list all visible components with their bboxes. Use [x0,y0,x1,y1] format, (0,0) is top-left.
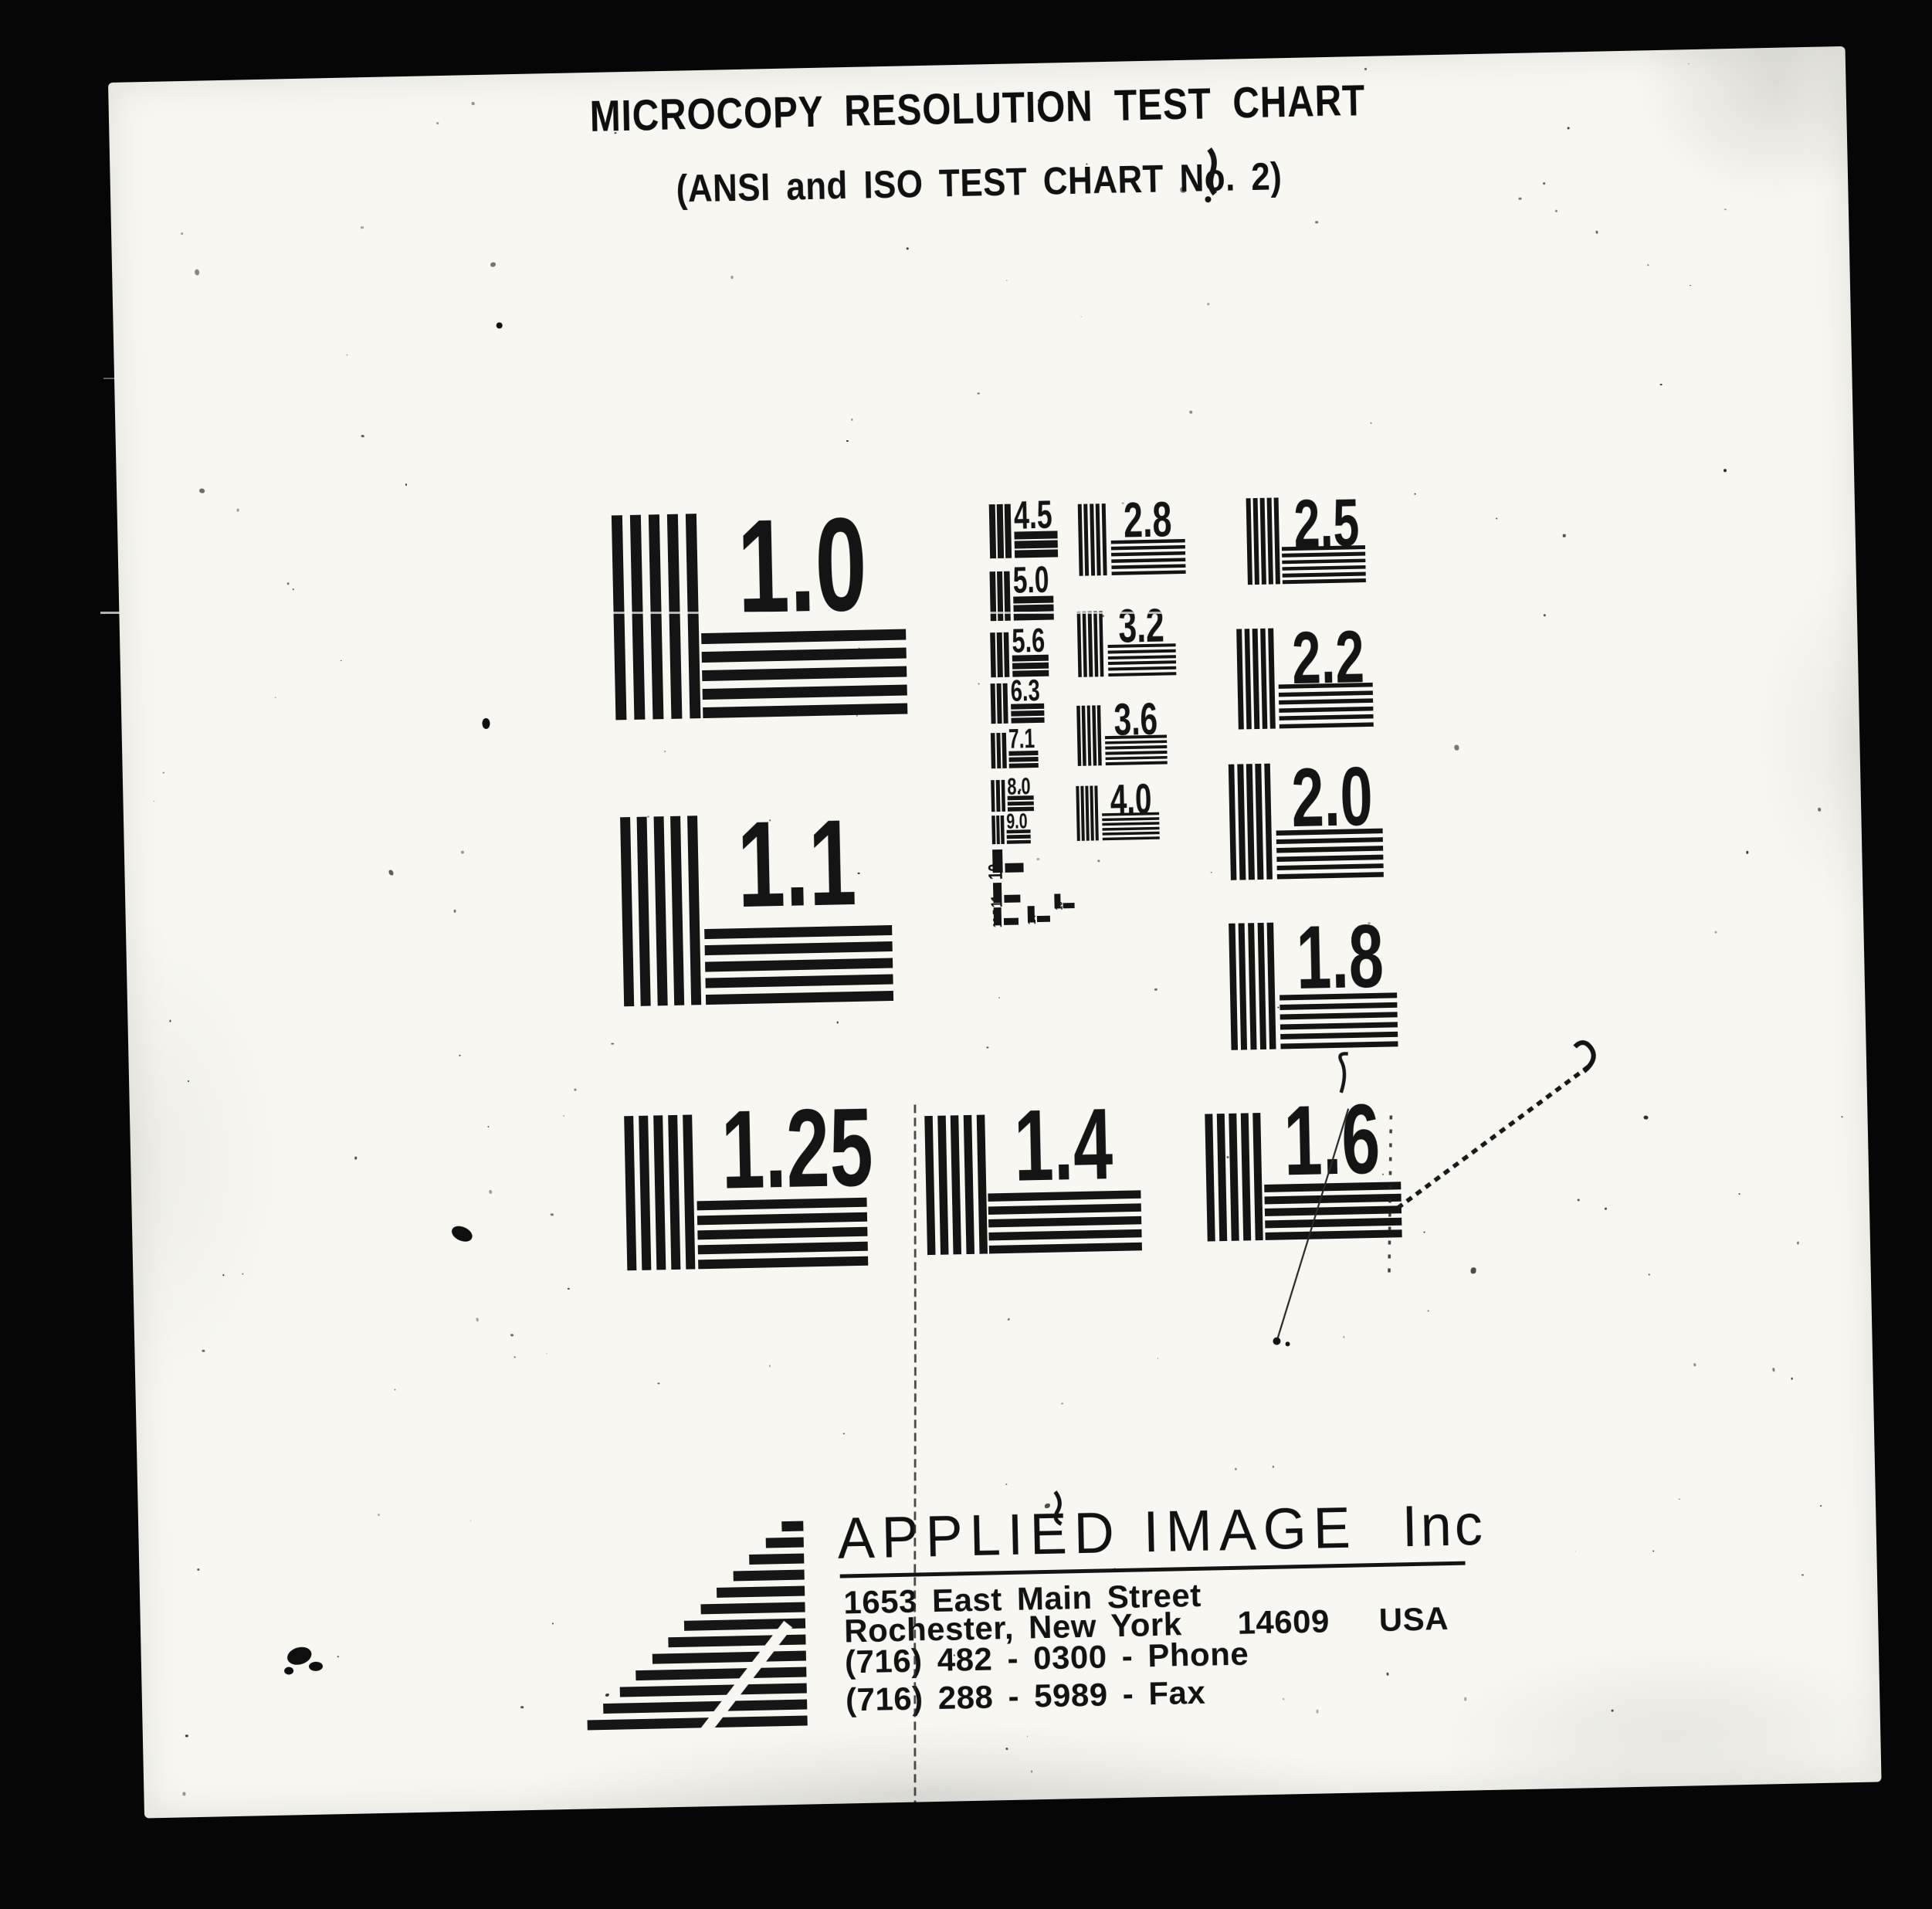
dust-speck [1649,1274,1650,1276]
dust-speck [1189,410,1192,413]
dust-speck [1081,316,1083,317]
dust-speck [169,1020,171,1022]
dust-speck [242,1273,243,1276]
dust-speck [1496,518,1497,520]
dust-speck [1386,1673,1389,1676]
resolution-pattern-5.0: 5.0 [990,571,1054,622]
dust-speck [1454,745,1459,751]
resolution-value-label: 2.5 [1293,490,1353,558]
vertical-bars-block [1205,1113,1263,1241]
resolution-pattern-2.2: 2.2 [1236,626,1374,730]
resolution-pattern-1.4: 1.4 [924,1111,1142,1255]
dust-speck [1061,1402,1063,1404]
vertical-bars-block [624,1114,695,1270]
brand-suffix: Inc [1402,1493,1486,1559]
dust-speck [461,851,464,854]
dust-speck [1568,127,1570,129]
brand-line: APPLIED IMAGEInc [837,1491,1534,1572]
dust-speck [1647,264,1649,266]
dust-speck [514,1356,516,1358]
dust-speck [1368,922,1371,925]
dust-speck [293,588,294,590]
dust-speck [978,683,980,685]
logo-stripe [588,1716,808,1731]
resolution-value-label: 2.0 [1290,754,1367,839]
vertical-bars-block [989,504,1012,559]
dust-speck [1519,198,1522,200]
dust-speck [488,1126,490,1127]
ink-blob [449,1223,475,1245]
brand-text: APPLIED IMAGE [837,1496,1358,1572]
dust-speck [552,1622,554,1624]
resolution-pattern-3.2: 3.2 [1077,609,1177,677]
resolution-pattern-1.6: 1.6 [1205,1110,1402,1241]
dust-speck [489,1190,492,1194]
logo-stripe [603,1700,807,1714]
dust-speck [1611,1709,1613,1711]
vertical-bars-block [620,815,701,1006]
dust-speck [1724,469,1727,473]
resolution-value-label: 1.4 [1008,1093,1117,1196]
vertical-bars-block [1246,497,1280,585]
vertical-bars-block [1077,611,1104,677]
vertical-bars-block [1236,629,1276,730]
dust-speck [1086,163,1087,164]
dust-speck [1428,1310,1429,1312]
dust-speck [658,1383,660,1385]
dust-speck [993,840,995,842]
dust-speck [1157,1358,1158,1359]
dust-speck [1139,1633,1141,1636]
dust-speck [354,1157,358,1160]
vertical-bars-block [1076,705,1102,766]
resolution-value-label: 5.0 [1012,562,1041,600]
resolution-pattern-3.6: 3.6 [1076,704,1168,765]
vertical-bars-block [924,1115,988,1256]
dust-speck [454,910,456,913]
logo-stripe [620,1684,807,1697]
resolution-pattern-5.6: 5.6 [990,632,1049,678]
resolution-pattern-16: 16 [1054,893,1074,909]
dust-speck [340,660,341,661]
dust-speck [470,1520,472,1521]
dust-speck [287,582,290,585]
dust-speck [346,354,347,355]
dust-speck [405,483,407,486]
dust-speck [1652,1551,1654,1552]
dust-speck [1688,63,1690,65]
dust-speck [1464,1697,1467,1701]
dust-speck [1007,1318,1009,1321]
dust-speck [388,870,393,875]
horizontal-bars-block [1063,903,1075,908]
dust-speck [1577,1199,1580,1202]
resolution-value-label: 1.8 [1296,910,1380,1002]
resolution-value-label: 3.6 [1113,697,1158,743]
vertical-bars-block [1076,785,1098,841]
dust-speck [1283,1697,1284,1700]
dust-speck [1364,68,1366,70]
dust-speck [1605,1207,1607,1209]
dust-speck [575,1088,577,1090]
resolution-value-label: 9.0 [1006,810,1023,832]
dust-speck [730,276,733,280]
dust-speck [1841,1116,1842,1117]
resolution-value-label: 10 [986,863,1005,880]
dust-speck [1382,1174,1384,1175]
dust-speck [605,1694,609,1697]
dust-speck [1470,1267,1476,1273]
resolution-value-label: 2.8 [1121,494,1174,544]
dust-speck [1019,788,1021,791]
ink-blob-cluster [285,1644,314,1667]
dust-speck [1235,1468,1237,1470]
logo-stripe [652,1651,806,1664]
resolution-pattern-2.8: 2.8 [1078,502,1186,576]
dust-speck [1643,1115,1648,1119]
dust-speck [1802,1574,1804,1576]
dust-speck [185,1734,188,1737]
dust-speck [521,1706,524,1708]
dust-speck [472,102,474,105]
resolution-pattern-7.1: 7.1 [991,732,1039,768]
dust-speck [1005,1748,1008,1750]
dust-speck [978,393,979,395]
dust-speck [1679,1498,1681,1500]
resolution-value-label: 8.0 [1007,774,1025,798]
dust-speck [611,1043,614,1045]
dust-speck [1690,285,1691,286]
resolution-pattern-2.5: 2.5 [1246,496,1366,585]
resolution-pattern-10: 10 [992,849,1024,873]
horizontal-bars-block [1037,916,1050,922]
resolution-value-label: 1.6 [1283,1090,1381,1192]
dust-speck [1097,860,1100,863]
dust-speck [337,1656,338,1658]
vertical-bars-block [991,733,1007,768]
dust-speck [851,419,852,421]
resolution-pattern-1.0: 1.0 [612,510,907,721]
dust-speck [195,269,199,275]
dust-speck [1818,808,1821,812]
vertical-bars-block [990,571,1011,622]
dust-speck [546,1353,547,1355]
dust-speck [954,1655,955,1656]
dust-speck [987,1046,989,1049]
resolution-pattern-14: 14 [1028,906,1050,923]
dust-speck [1595,231,1598,234]
dust-speck [459,1055,461,1056]
resolution-value-label: 6.3 [1010,676,1034,707]
dust-speck [1208,303,1210,305]
dust-speck [1554,209,1557,212]
vertical-bars-block [1078,504,1107,576]
dust-speck [1038,100,1040,102]
dust-speck [361,435,364,437]
dust-speck [1006,1483,1008,1485]
logo-stripe [781,1521,803,1532]
resolution-value-label: 11 [989,895,1005,907]
resolution-pattern-1.1: 1.1 [620,812,893,1006]
resolution-pattern-9.0: 9.0 [991,815,1031,844]
dust-speck [614,132,616,134]
dust-speck [647,816,649,818]
dust-speck [1544,614,1546,616]
dotted-scratch-line [1395,1066,1591,1208]
resolution-value-label: 5.6 [1012,624,1038,659]
scanned-frame: { "document": { "title": "MICROCOPY RESO… [0,0,1932,1909]
dust-speck [1797,1242,1800,1245]
logo-stripe [749,1554,804,1565]
scratch-hook [1574,1043,1594,1072]
dust-speck [1121,502,1124,504]
horizontal-bars-block [701,629,907,719]
dust-speck [858,647,859,649]
dust-speck [153,801,154,802]
dust-speck [568,1288,570,1290]
resolution-pattern-12.5: 12.5 [994,907,1019,926]
dust-speck [837,1022,839,1024]
dust-speck [274,697,276,697]
resolution-value-label: 1.0 [729,497,875,633]
dust-speck [490,262,496,266]
address-country: USA [1378,1600,1449,1638]
dust-speck [1227,1156,1229,1158]
dust-speck [202,1349,205,1352]
resolution-pattern-11: 11 [993,882,1021,903]
resolution-value-label: 1.1 [730,802,863,927]
dust-speck [1714,931,1717,933]
dust-speck [1693,1363,1696,1367]
dust-speck [476,1317,479,1321]
applied-image-logo [583,1521,808,1734]
resolution-value-label: 4.0 [1110,778,1151,821]
dust-speck [1739,1193,1740,1195]
dust-speck [846,440,849,442]
resolution-pattern-1.25: 1.25 [624,1111,868,1270]
logo-stripe [717,1586,805,1598]
dust-speck [1772,1368,1775,1372]
dust-speck [769,819,771,821]
resolution-pattern-8.0: 8.0 [991,779,1034,812]
dust-speck [551,1213,553,1216]
resolution-pattern-6.3: 6.3 [991,683,1045,724]
dust-speck [1343,1336,1344,1338]
dust-speck [907,248,909,250]
horizontal-bars-block [1005,863,1023,873]
dust-speck [236,509,239,512]
resolution-pattern-4.5: 4.5 [989,503,1058,558]
resolution-value-label: 3.2 [1117,602,1166,650]
dust-speck [563,1115,564,1117]
dust-speck [1273,1466,1274,1467]
dust-speck [769,1365,771,1368]
dust-speck [199,488,205,493]
logo-stripe [766,1538,804,1548]
horizontal-bars-block [1004,918,1019,925]
horizontal-bars-block [1004,894,1020,902]
resolution-value-label: 2.2 [1291,620,1358,696]
resolution-value-label: 4.5 [1013,495,1044,535]
dust-speck [744,1724,747,1725]
vertical-bars-block [1229,923,1276,1050]
page-title: MICROCOPY RESOLUTION TEST CHART [247,68,1707,150]
dust-speck [361,226,364,229]
dust-speck [1031,1771,1032,1772]
hairline-end-blob [1273,1338,1280,1345]
dust-speck [1277,1007,1279,1009]
dust-speck [1316,221,1318,223]
dust-speck [197,1568,199,1571]
logo-stripe [636,1667,806,1681]
dust-speck [1414,493,1415,494]
address-zip: 14609 [1237,1602,1330,1640]
dust-speck [183,1792,186,1796]
horizontal-bars-block [704,925,893,1005]
vertical-bars-block [1229,764,1273,880]
dust-speck [222,1275,224,1276]
dust-speck [1820,1505,1822,1507]
resolution-pattern-2.0: 2.0 [1229,761,1384,880]
dust-speck [1211,872,1212,873]
logo-stripe [734,1570,805,1582]
dust-speck [163,772,164,774]
logo-stripe [700,1602,805,1615]
dust-speck [181,232,182,234]
page-subtitle: (ANSI and ISO TEST CHART No. 2) [215,144,1744,221]
dust-speck [1423,1232,1425,1233]
dust-speck [1563,534,1565,537]
resolution-pattern-1.8: 1.8 [1229,920,1398,1049]
dust-speck [378,1514,380,1516]
dust-speck [188,1080,189,1082]
resolution-value-label: 7.1 [1008,726,1029,754]
resolution-value-label: 14 [1026,915,1038,925]
dust-speck [1724,209,1727,210]
resolution-value-label: 16 [1053,901,1063,910]
vertical-bars-block [990,632,1009,677]
dust-speck [1316,1710,1319,1714]
dust-speck [856,715,858,717]
dust-speck [1746,851,1748,854]
dust-speck [510,1334,514,1336]
test-chart-page: MICROCOPY RESOLUTION TEST CHART (ANSI an… [108,46,1882,1819]
dust-speck [1027,1736,1029,1737]
vertical-bars-block [991,683,1008,724]
dust-speck [1037,858,1039,860]
resolution-value-label: 1.25 [720,1093,842,1206]
dust-speck [1006,280,1008,280]
dust-speck [1154,988,1158,992]
resolution-value-label: 12.5 [992,910,1005,928]
vertical-bars-block [991,780,1005,812]
dust-speck [1659,384,1663,386]
resolution-pattern-4.0: 4.0 [1076,785,1159,841]
fax-line: (716) 288 - 5989 - Fax [846,1674,1206,1719]
dust-speck [842,1433,844,1435]
dust-speck [664,751,666,752]
vertical-bars-block [612,514,701,720]
dust-speck [394,1389,395,1390]
dust-speck [998,997,1000,998]
dust-speck [1791,1378,1793,1380]
dust-speck [1575,1551,1577,1551]
dust-speck [1370,422,1371,424]
